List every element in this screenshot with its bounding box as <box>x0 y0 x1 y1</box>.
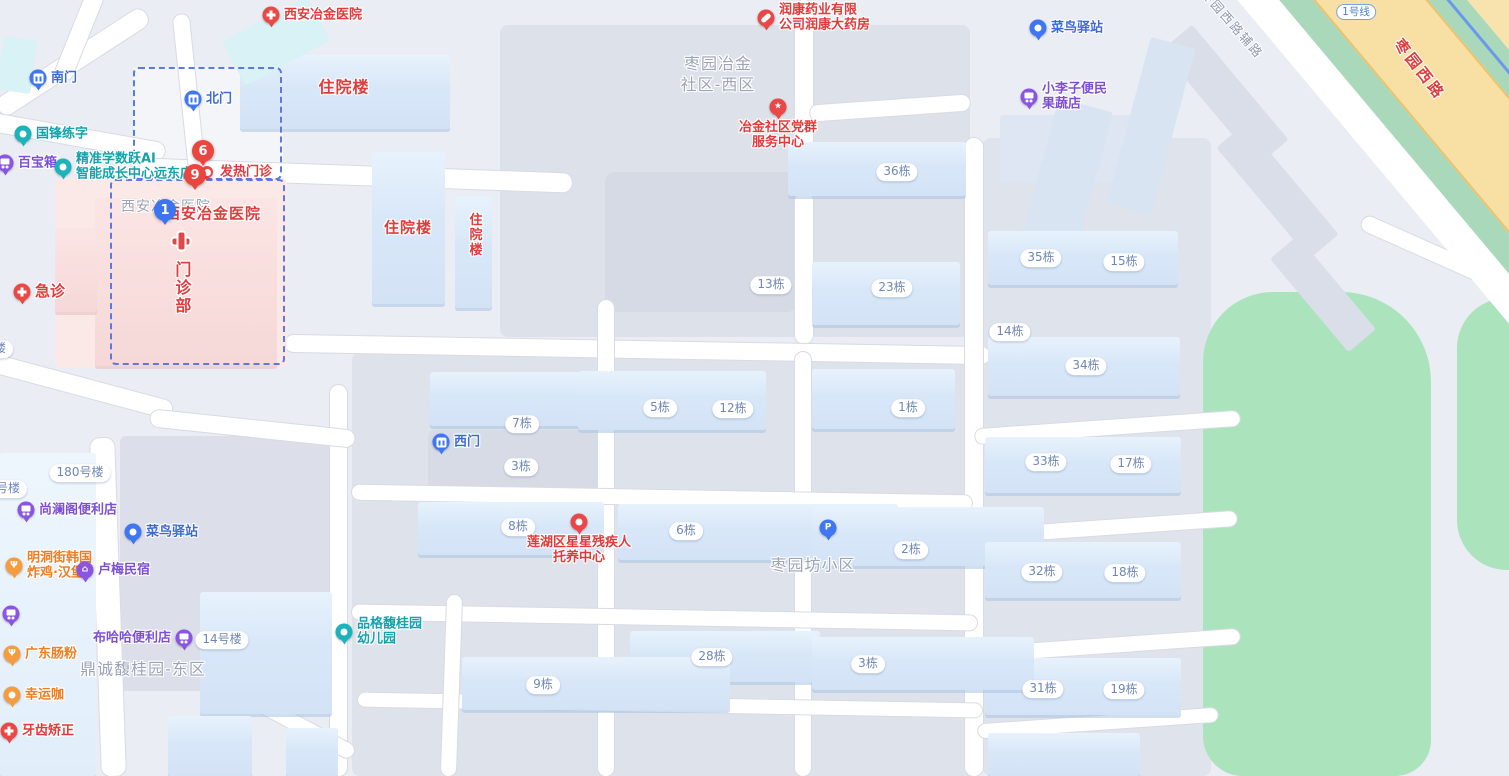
building <box>985 437 1181 493</box>
edge-store-marker-pin[interactable] <box>3 606 20 623</box>
building-badge: 15栋 <box>1103 253 1144 271</box>
runkang-pharmacy-pin[interactable] <box>758 10 775 27</box>
zaoyuan-yejin-community-west: 枣园冶金社区-西区 <box>681 54 756 96</box>
inpatient-building-1: 住院楼 <box>318 78 369 99</box>
house-icon: ⌂ <box>82 566 88 575</box>
xian-metallurgical-hospital-label: 西安冶金医院 <box>284 7 362 22</box>
baibaoxiang-label: 百宝箱 <box>18 155 57 170</box>
building-badge: 35栋 <box>1020 249 1061 267</box>
icbc-bank-partial: 中国工商银行 <box>1080 0 1164 1</box>
gate-icon <box>436 437 446 447</box>
party-service-center-label: 冶金社区党群服务中心 <box>739 120 817 151</box>
lianhu-star-care-center-pin[interactable] <box>571 514 588 531</box>
building-badge: 28栋 <box>691 648 732 666</box>
inpatient-building-3: 住院楼 <box>465 213 482 258</box>
cart-icon <box>7 610 16 616</box>
dot-icon <box>576 519 583 526</box>
building-badge: 6栋 <box>669 522 703 540</box>
building <box>988 733 1140 776</box>
dingcheng-fuguiyuan-east: 鼎诚馥桂园-东区 <box>80 660 206 681</box>
hospital-cross-icon <box>173 233 190 250</box>
xiaolizi-grocery-pin[interactable] <box>1021 89 1038 106</box>
xingyunka-coffee-pin[interactable] <box>4 687 21 704</box>
zaoyuanfang-community: 枣园坊小区 <box>770 556 855 577</box>
lumei-homestay-pin[interactable]: ⌂ <box>77 562 94 579</box>
jingzhun-ai-center-label: 精准学数跃AI智能成长中心远东店 <box>76 152 193 183</box>
pinge-kindergarten-pin[interactable] <box>336 624 353 641</box>
gate-south-pin[interactable] <box>30 70 47 87</box>
building-badge: 31栋 <box>1022 680 1063 698</box>
cainiao-station-north-pin[interactable] <box>1030 20 1047 37</box>
lumei-homestay-label: 卢梅民宿 <box>98 562 150 577</box>
jingzhun-ai-center-pin[interactable] <box>55 159 72 176</box>
cainiao-station-south-pin[interactable] <box>125 524 142 541</box>
building <box>200 592 332 714</box>
buhaha-store-pin[interactable] <box>176 630 193 647</box>
cainiao-station-north-label: 菜鸟驿站 <box>1051 20 1103 35</box>
gate-west-pin[interactable] <box>433 434 450 451</box>
lianhu-star-care-center-label: 莲湖区星星残疾人托养中心 <box>527 535 631 566</box>
cart-icon <box>180 634 189 640</box>
shanglange-store-label: 尚澜阁便利店 <box>39 502 117 517</box>
shanglange-store-pin[interactable] <box>18 502 35 519</box>
building <box>988 231 1178 285</box>
gate-icon <box>33 73 43 83</box>
inpatient-building-2: 住院楼 <box>384 218 432 238</box>
buhaha-store-label: 布哈哈便利店 <box>93 630 171 645</box>
party-service-center-pin[interactable]: ★ <box>770 99 787 116</box>
building-badge: 33栋 <box>1025 453 1066 471</box>
guofeng-lianzi-pin[interactable] <box>15 126 32 143</box>
building-badge: 180号楼 <box>50 464 111 482</box>
cart-icon <box>22 506 31 512</box>
fork-icon: Ψ <box>8 650 16 659</box>
building-badge: 17栋 <box>1110 455 1151 473</box>
xiaolizi-grocery-label: 小李子便民果蔬店 <box>1042 82 1107 113</box>
building-badge: 32栋 <box>1021 563 1062 581</box>
cainiao-station-south-label: 菜鸟驿站 <box>146 524 198 539</box>
dot-icon <box>60 164 67 171</box>
building <box>812 369 955 429</box>
parking-lot-pin[interactable]: P <box>820 520 837 537</box>
building-badge: 19栋 <box>1103 681 1144 699</box>
dental-orthodontics-label: 牙齿矫正 <box>22 723 74 738</box>
outpatient-dept: 门诊部 <box>171 261 192 315</box>
xian-metallurgical-hospital-pin[interactable] <box>263 7 280 24</box>
building <box>286 728 338 776</box>
baibaoxiang-pin[interactable] <box>0 155 14 172</box>
guangdong-changfen-label: 广东肠粉 <box>25 646 77 661</box>
runkang-pharmacy-label: 润康药业有限公司润康大药房 <box>779 3 870 34</box>
capsule-icon <box>760 12 772 23</box>
star-icon: ★ <box>774 103 782 112</box>
dot-icon <box>130 529 137 536</box>
building-badge: 18栋 <box>1104 564 1145 582</box>
cart-icon <box>1025 93 1034 99</box>
building-badge: 3栋 <box>504 458 538 476</box>
building-badge: 14号楼 <box>195 631 248 649</box>
gate-west-label: 西门 <box>454 434 480 449</box>
building-badge: 号楼 <box>0 480 27 498</box>
dot-icon <box>20 131 27 138</box>
guofeng-lianzi-label: 国锋练字 <box>36 126 88 141</box>
building-badge: 1栋 <box>891 399 925 417</box>
result-marker-6[interactable]: 6 <box>192 140 214 162</box>
result-marker-9[interactable]: 9 <box>184 164 206 186</box>
dot-icon <box>1035 25 1042 32</box>
xingyunka-coffee-label: 幸运咖 <box>25 687 64 702</box>
building-badge: 36栋 <box>876 163 917 181</box>
map-canvas[interactable]: 36栋13栋23栋14栋35栋15栋34栋7栋3栋5栋12栋1栋8栋6栋2栋28… <box>0 0 1509 776</box>
dot-icon <box>9 692 16 699</box>
building <box>812 637 1034 690</box>
building-badge: 12栋 <box>712 400 753 418</box>
pinge-kindergarten-label: 品格馥桂园幼儿园 <box>357 617 422 648</box>
building-badge: 13栋 <box>750 276 791 294</box>
emergency-dept-pin[interactable] <box>14 284 31 301</box>
road <box>795 192 813 344</box>
dot-icon <box>341 629 348 636</box>
gate-south-label: 南门 <box>51 70 77 85</box>
building <box>462 657 730 710</box>
gate-north-pin[interactable] <box>185 91 202 108</box>
fever-clinic-label: 发热门诊 <box>220 164 272 179</box>
gate-north-label: 北门 <box>206 91 232 106</box>
building-badge: 34栋 <box>1065 357 1106 375</box>
building-badge: 2栋 <box>894 541 928 559</box>
cross-icon <box>5 727 14 736</box>
building-badge: 楼 <box>0 340 13 358</box>
cross-icon <box>267 11 276 20</box>
fork-icon: Ψ <box>10 562 18 571</box>
metro-line-1-badge: 1号线 <box>1336 4 1376 20</box>
building-badge: 14栋 <box>989 323 1030 341</box>
result-marker-1[interactable]: 1 <box>154 199 176 221</box>
dental-orthodontics-pin[interactable] <box>1 723 18 740</box>
emergency-dept-label: 急诊 <box>35 283 65 301</box>
building-badge: 5栋 <box>643 399 677 417</box>
building-badge: 7栋 <box>505 415 539 433</box>
mingdong-korean-chicken-pin[interactable]: Ψ <box>6 558 23 575</box>
hospital-name-red: 西安冶金医院 <box>165 204 261 224</box>
p-icon: P <box>825 524 832 533</box>
building-badge: 8栋 <box>501 518 535 536</box>
guangdong-changfen-pin[interactable]: Ψ <box>4 646 21 663</box>
building-badge: 23栋 <box>871 279 912 297</box>
building <box>985 542 1181 598</box>
cross-icon <box>18 288 27 297</box>
building <box>168 716 252 776</box>
cart-icon <box>1 159 10 165</box>
gate-icon <box>188 94 198 104</box>
building-badge: 3栋 <box>851 655 885 673</box>
building-badge: 9栋 <box>526 676 560 694</box>
